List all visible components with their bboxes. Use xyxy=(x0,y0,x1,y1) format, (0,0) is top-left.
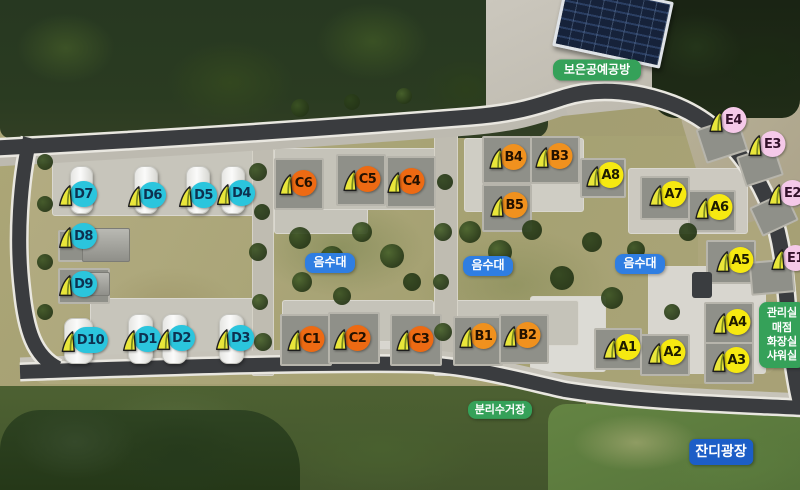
parked-vehicle xyxy=(692,272,712,298)
facility-label-office-info: 관리실매점화장실샤워실 xyxy=(759,302,800,368)
site-badge: D6 xyxy=(139,182,166,208)
tent-icon xyxy=(489,195,506,219)
tree xyxy=(396,88,412,104)
site-marker-C3: C3 xyxy=(395,326,434,352)
tree xyxy=(437,174,453,190)
tree xyxy=(403,273,421,291)
tent-icon xyxy=(177,185,194,209)
tree xyxy=(333,287,351,305)
site-marker-A1: A1 xyxy=(601,334,640,360)
site-marker-A8: A8 xyxy=(584,162,623,188)
site-marker-D5: D5 xyxy=(177,182,217,208)
tent-icon xyxy=(767,183,784,207)
tent-icon xyxy=(711,312,728,336)
facility-label-text: 음수대 xyxy=(313,255,346,271)
tree xyxy=(249,243,267,261)
tree xyxy=(291,99,309,117)
tent-icon xyxy=(215,183,232,207)
tent-icon xyxy=(57,274,74,298)
tent-icon xyxy=(708,110,725,134)
facility-label-recycling-station: 분리수거장 xyxy=(468,401,532,419)
tent-icon xyxy=(214,328,231,352)
tent-icon xyxy=(601,337,618,361)
site-marker-A6: A6 xyxy=(693,194,732,220)
site-marker-D2: D2 xyxy=(155,325,195,351)
tent-icon xyxy=(647,184,664,208)
site-marker-C6: C6 xyxy=(278,170,317,196)
tree xyxy=(344,94,360,110)
campground-aerial-map: D7D6D5D4D8D9D10D1D2D3C6C5C4C1C2C3B4B3B5B… xyxy=(0,0,800,490)
facility-label-line: 매점 xyxy=(772,321,792,335)
site-marker-A7: A7 xyxy=(647,181,686,207)
facility-label-line: 샤워실 xyxy=(767,349,797,363)
site-marker-E4: E4 xyxy=(708,107,747,133)
site-marker-D6: D6 xyxy=(126,182,166,208)
tent-icon xyxy=(121,329,138,353)
tree xyxy=(254,333,272,351)
site-badge: D2 xyxy=(168,325,195,351)
facility-label-water-station-1: 음수대 xyxy=(305,253,355,273)
tent-icon xyxy=(693,197,710,221)
facility-label-craft-workshop: 보은공예공방 xyxy=(553,60,641,81)
tree xyxy=(679,223,697,241)
tent-icon xyxy=(386,171,403,195)
tree xyxy=(352,222,372,242)
tent-icon xyxy=(278,173,295,197)
site-badge: D4 xyxy=(228,180,255,206)
facility-label-text: 분리수거장 xyxy=(475,403,526,417)
tree xyxy=(522,220,542,240)
tree xyxy=(664,304,680,320)
site-marker-D4: D4 xyxy=(215,180,255,206)
tree xyxy=(37,304,53,320)
tent-icon xyxy=(714,250,731,274)
tree xyxy=(550,266,574,290)
site-marker-E2: E2 xyxy=(767,180,800,206)
site-marker-B5: B5 xyxy=(489,192,528,218)
site-marker-A5: A5 xyxy=(714,247,753,273)
site-marker-C4: C4 xyxy=(386,168,425,194)
tent-icon xyxy=(332,328,349,352)
site-marker-E1: E1 xyxy=(770,245,800,271)
tent-icon xyxy=(60,330,77,354)
tent-icon xyxy=(57,184,74,208)
site-marker-D7: D7 xyxy=(57,181,97,207)
tent-icon xyxy=(710,350,727,374)
site-marker-C1: C1 xyxy=(286,326,325,352)
site-marker-B3: B3 xyxy=(534,143,573,169)
tree xyxy=(459,221,481,243)
tree xyxy=(434,223,452,241)
site-marker-E3: E3 xyxy=(747,131,786,157)
tree xyxy=(434,323,452,341)
tent-icon xyxy=(342,169,359,193)
tent-icon xyxy=(488,147,505,171)
site-marker-B4: B4 xyxy=(488,144,527,170)
site-badge: D10 xyxy=(73,327,108,353)
tent-icon xyxy=(155,328,172,352)
facility-label-text: 잔디광장 xyxy=(695,443,747,461)
tent-icon xyxy=(126,185,143,209)
tent-icon xyxy=(747,134,764,158)
tree xyxy=(37,196,53,212)
site-marker-C5: C5 xyxy=(342,166,381,192)
site-marker-D10: D10 xyxy=(60,327,108,353)
tree xyxy=(582,232,602,252)
tree xyxy=(252,294,268,310)
facility-label-lawn-plaza: 잔디광장 xyxy=(689,439,753,465)
facility-label-line: 화장실 xyxy=(767,335,797,349)
site-marker-A4: A4 xyxy=(711,309,750,335)
tent-icon xyxy=(286,329,303,353)
tent-icon xyxy=(534,146,551,170)
facility-label-water-station-3: 음수대 xyxy=(615,254,665,274)
facility-label-text: 음수대 xyxy=(623,256,656,272)
tent-icon xyxy=(458,326,475,350)
tree xyxy=(289,227,311,249)
tent-icon xyxy=(502,325,519,349)
site-badge: D5 xyxy=(190,182,217,208)
site-marker-B1: B1 xyxy=(458,323,497,349)
site-badge: D7 xyxy=(70,181,97,207)
tent-icon xyxy=(395,329,412,353)
tree xyxy=(37,154,53,170)
site-badge: D9 xyxy=(70,271,97,297)
site-marker-A2: A2 xyxy=(646,339,685,365)
facility-label-water-station-2: 음수대 xyxy=(463,256,513,276)
site-marker-C2: C2 xyxy=(332,325,371,351)
site-marker-D8: D8 xyxy=(57,223,97,249)
facility-label-line: 관리실 xyxy=(767,306,797,320)
tent-icon xyxy=(57,226,74,250)
site-marker-D9: D9 xyxy=(57,271,97,297)
site-marker-D3: D3 xyxy=(214,325,254,351)
tent-icon xyxy=(646,342,663,366)
tree xyxy=(380,244,404,268)
tree xyxy=(433,274,449,290)
site-marker-A3: A3 xyxy=(710,347,749,373)
tree xyxy=(292,272,312,292)
facility-label-text: 보은공예공방 xyxy=(564,62,630,78)
site-badge: D8 xyxy=(70,223,97,249)
site-badge: D3 xyxy=(227,325,254,351)
tree xyxy=(601,287,623,309)
tree xyxy=(37,254,53,270)
tent-icon xyxy=(770,248,787,272)
tree xyxy=(249,163,267,181)
tent-icon xyxy=(584,165,601,189)
site-marker-B2: B2 xyxy=(502,322,541,348)
tree xyxy=(254,204,270,220)
facility-label-text: 음수대 xyxy=(471,258,504,274)
